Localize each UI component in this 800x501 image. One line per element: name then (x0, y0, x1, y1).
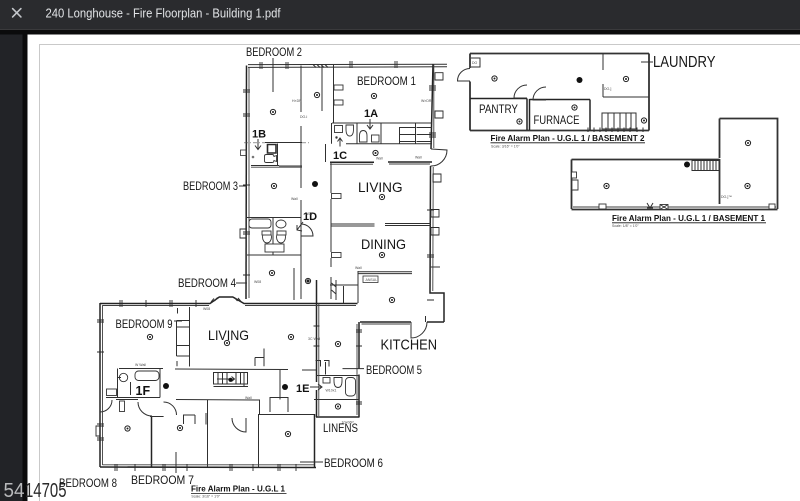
svg-text:1C: 1C (333, 150, 347, 162)
svg-text:BEDROOM 3: BEDROOM 3 (183, 181, 238, 193)
svg-text:Fire Alarm Plan - U.G.L 1: Fire Alarm Plan - U.G.L 1 (191, 485, 285, 494)
svg-text:BEDROOM 8: BEDROOM 8 (59, 478, 117, 490)
svg-text:H×DR: H×DR (292, 99, 302, 103)
svg-text:1E: 1E (296, 383, 309, 395)
svg-text:DO-]: DO-] (604, 87, 611, 91)
svg-text:54: 54 (4, 480, 25, 501)
svg-text:Scale: 3/16" = 1'0": Scale: 3/16" = 1'0" (191, 495, 220, 499)
svg-text:W×DR: W×DR (421, 99, 432, 103)
svg-text:Wall: Wall (376, 157, 383, 161)
svg-text:W08: W08 (203, 307, 210, 311)
svg-text:FURNACE: FURNACE (534, 115, 580, 127)
svg-text:BEDROOM 7: BEDROOM 7 (131, 475, 194, 487)
svg-text:Wall: Wall (245, 396, 252, 400)
svg-text:1B: 1B (252, 129, 266, 141)
svg-text:BEDROOM 5: BEDROOM 5 (366, 365, 422, 377)
svg-text:Scale: 3/16" = 1'0": Scale: 3/16" = 1'0" (491, 145, 520, 149)
svg-text:W08: W08 (305, 212, 312, 216)
svg-text:1F: 1F (136, 384, 151, 398)
svg-text:DINING: DINING (361, 236, 406, 252)
svg-text:LIVING: LIVING (358, 179, 403, 195)
svg-text:Wall: Wall (291, 197, 298, 201)
svg-text:LAUNDRY: LAUNDRY (653, 54, 716, 71)
svg-text:BEDROOM 1: BEDROOM 1 (357, 76, 416, 88)
svg-text:Scale: 1/8" = 1'0": Scale: 1/8" = 1'0" (612, 224, 639, 228)
svg-text:240 Longhouse - Fire Floorplan: 240 Longhouse - Fire Floorplan - Buildin… (46, 7, 281, 21)
svg-text:Fire Alarm Plan - U.G.L 1 / BA: Fire Alarm Plan - U.G.L 1 / BASEMENT 1 (612, 213, 765, 223)
svg-text:Wall: Wall (415, 156, 422, 160)
svg-text:BEDROOM 6: BEDROOM 6 (324, 458, 383, 470)
svg-text:Fire Alarm Plan - U.G.L 1 / BA: Fire Alarm Plan - U.G.L 1 / BASEMENT 2 (491, 134, 645, 143)
svg-text:DO-]™: DO-]™ (721, 195, 732, 199)
svg-text:W Wall: W Wall (135, 363, 146, 367)
svg-text:ANSUL: ANSUL (366, 278, 378, 282)
svg-text:BEDROOM 2: BEDROOM 2 (246, 47, 302, 59)
svg-text:3C Wall: 3C Wall (308, 337, 320, 341)
svg-text:DO-I: DO-I (300, 115, 307, 119)
svg-text:W10x1: W10x1 (326, 389, 337, 393)
svg-text:W08: W08 (254, 280, 261, 284)
svg-text:1A: 1A (364, 108, 378, 120)
svg-text:PANTRY: PANTRY (479, 104, 518, 116)
svg-text:BEDROOM 4: BEDROOM 4 (178, 278, 237, 290)
svg-text:10×06P: 10×06P (342, 421, 355, 425)
svg-text:Wall: Wall (355, 266, 362, 270)
svg-text:KITCHEN: KITCHEN (381, 338, 438, 354)
svg-text:LINENS: LINENS (323, 423, 358, 435)
svg-text:DO: DO (472, 61, 478, 65)
svg-text:BEDROOM 9: BEDROOM 9 (116, 319, 173, 331)
